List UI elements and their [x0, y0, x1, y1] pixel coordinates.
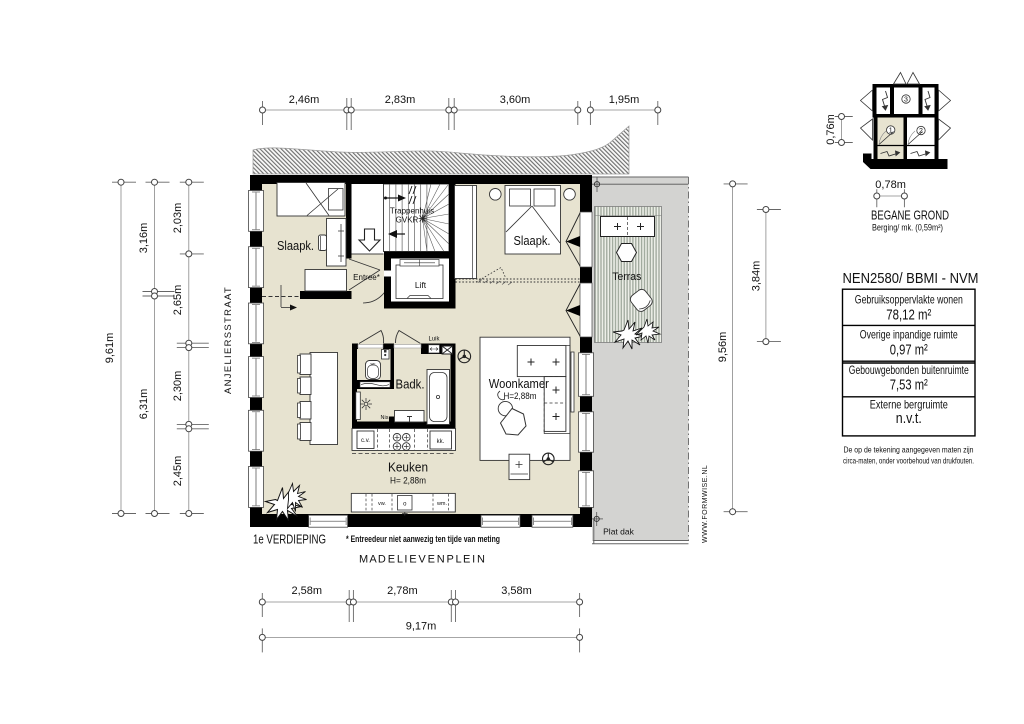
svg-text:vw.: vw. — [378, 501, 386, 507]
svg-text:0,78m: 0,78m — [875, 179, 906, 191]
svg-text:BEGANE GROND: BEGANE GROND — [871, 209, 949, 223]
svg-text:3,58m: 3,58m — [501, 585, 532, 597]
svg-text:Nis: Nis — [381, 415, 389, 421]
svg-text:2,83m: 2,83m — [385, 94, 416, 106]
svg-text:3,60m: 3,60m — [500, 94, 531, 106]
svg-text:2,65m: 2,65m — [172, 285, 184, 316]
svg-text:c.v.: c.v. — [361, 438, 370, 444]
svg-text:2,46m: 2,46m — [289, 94, 320, 106]
svg-text:Gebouwgebonden buitenruimte: Gebouwgebonden buitenruimte — [849, 363, 969, 377]
svg-text:2,58m: 2,58m — [292, 585, 323, 597]
svg-text:3,84m: 3,84m — [751, 261, 763, 292]
svg-text:Plat dak: Plat dak — [603, 527, 634, 537]
svg-text:ANJELIERSSTRAAT: ANJELIERSSTRAAT — [223, 286, 234, 394]
svg-text:Gebruiksoppervlakte wonen: Gebruiksoppervlakte wonen — [855, 293, 963, 307]
svg-text:2,78m: 2,78m — [387, 585, 418, 597]
svg-text:* Entreedeur niet aanwezig ten: * Entreedeur niet aanwezig ten tijde van… — [346, 534, 500, 544]
svg-text:Overige inpandige ruimte: Overige inpandige ruimte — [860, 328, 958, 342]
svg-text:1e VERDIEPING: 1e VERDIEPING — [253, 533, 326, 547]
svg-text:7,53 m²: 7,53 m² — [890, 377, 928, 394]
svg-text:2,03m: 2,03m — [172, 203, 184, 234]
svg-text:78,12 m²: 78,12 m² — [886, 307, 931, 324]
svg-text:Lift: Lift — [415, 280, 427, 290]
svg-text:GVKR: GVKR — [396, 216, 419, 225]
svg-text:3,16m: 3,16m — [138, 223, 150, 254]
svg-text:Entree*: Entree* — [353, 273, 380, 282]
svg-text:wc: wc — [371, 361, 376, 366]
svg-text:H=2,88m: H=2,88m — [504, 391, 537, 401]
svg-text:Luik: Luik — [428, 337, 440, 343]
svg-text:0,76m: 0,76m — [825, 114, 837, 145]
svg-text:9,61m: 9,61m — [104, 333, 116, 364]
svg-text:circa-maten, onder voorbehoud: circa-maten, onder voorbehoud van drukfo… — [843, 456, 974, 466]
svg-text:Terras: Terras — [612, 271, 641, 283]
svg-text:NEN2580/ BBMI - NVM: NEN2580/ BBMI - NVM — [843, 270, 979, 287]
svg-text:wm.: wm. — [436, 501, 448, 507]
svg-text:6,31m: 6,31m — [138, 389, 150, 420]
svg-text:Slaapk.: Slaapk. — [514, 234, 551, 248]
svg-text:2,45m: 2,45m — [172, 456, 184, 487]
svg-text:Keuken: Keuken — [388, 460, 428, 475]
svg-text:Slaapk.: Slaapk. — [277, 239, 314, 253]
svg-text:0,97 m²: 0,97 m² — [890, 342, 928, 359]
svg-text:M A D E L I E V E N P L E I N: M A D E L I E V E N P L E I N — [359, 554, 485, 566]
svg-text:H= 2,88m: H= 2,88m — [390, 476, 426, 486]
svg-text:9,56m: 9,56m — [717, 332, 729, 363]
svg-text:2,30m: 2,30m — [172, 371, 184, 402]
svg-text:WWW.FORMWISE.NL: WWW.FORMWISE.NL — [702, 465, 709, 543]
svg-text:Badk.: Badk. — [396, 378, 425, 392]
svg-text:kk.: kk. — [437, 439, 445, 445]
svg-text:n.v.t.: n.v.t. — [896, 410, 922, 427]
svg-text:De op de tekening aangegeven m: De op de tekening aangegeven maten zijn — [844, 445, 974, 455]
svg-text:Trappenhuis: Trappenhuis — [390, 207, 434, 216]
svg-text:9,17m: 9,17m — [406, 621, 437, 633]
svg-text:Woonkamer: Woonkamer — [489, 377, 549, 391]
svg-text:1,95m: 1,95m — [609, 94, 640, 106]
svg-text:Berging/ mk. (0,59m²): Berging/ mk. (0,59m²) — [872, 223, 943, 233]
svg-text:3: 3 — [904, 97, 908, 104]
